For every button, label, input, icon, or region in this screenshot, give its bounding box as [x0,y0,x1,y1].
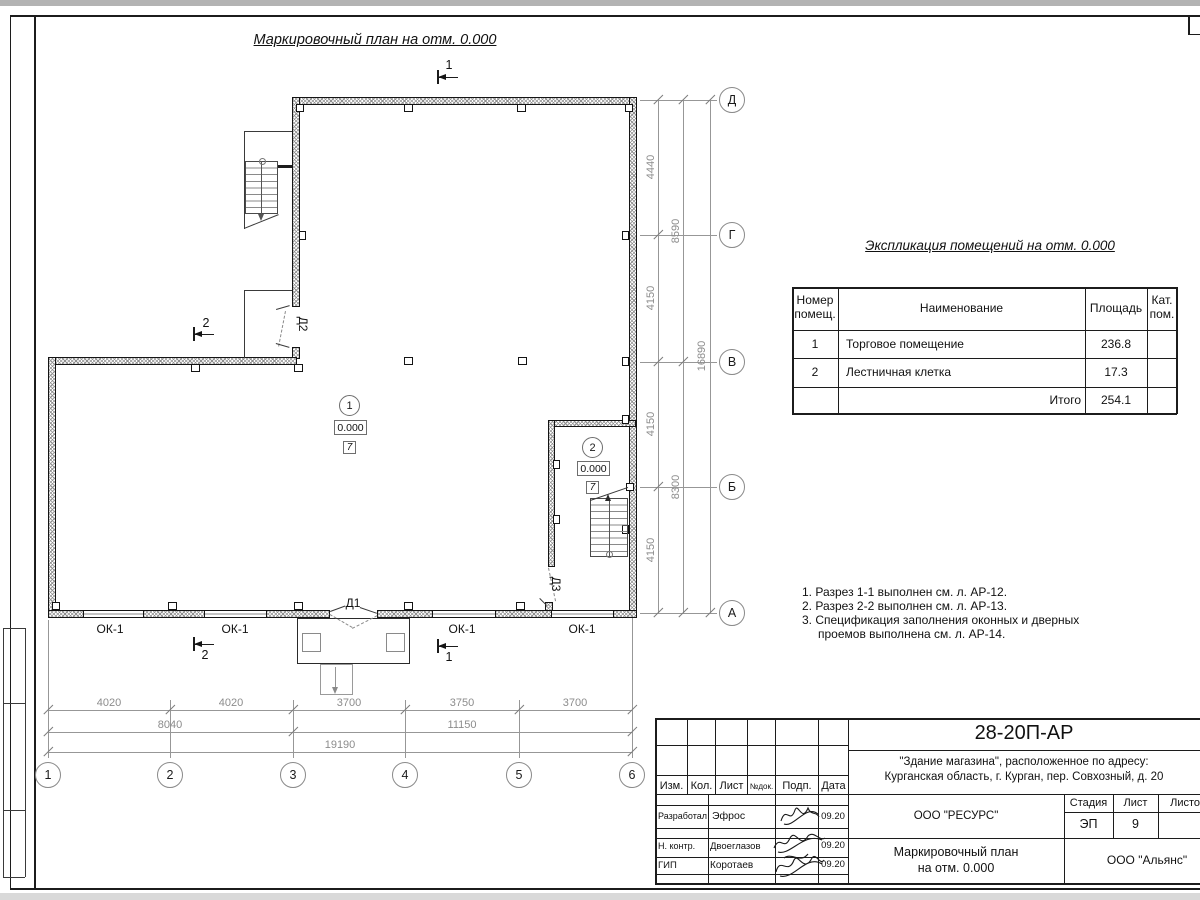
reg-strip-line [3,877,25,878]
drawing-sheet: Маркировочный план на отм. 0.000 [0,0,1200,900]
stair-direction-arrow-icon [605,494,611,501]
axis-circle-row: В [719,349,745,375]
table-col-header: Площадь [1085,301,1147,315]
dim-label: 4150 [645,278,657,318]
door-label-d2: Д2 [296,312,310,336]
wall-pier [622,357,629,366]
axis-circle-row: Б [719,474,745,500]
tb-sheets-label: Листов [1158,797,1200,809]
table-total-value: 254.1 [1085,393,1147,407]
wall-pier [52,602,60,610]
table-cell: Лестничная клетка [846,365,1066,379]
entry-arrow-icon [332,687,338,694]
axis-circle-row: Г [719,222,745,248]
wall-bottom-seg [613,610,637,618]
section-label: 1 [443,58,455,72]
dim-label: 3700 [550,697,600,709]
tb-header-data: Дата [819,780,848,792]
axis-circle-col: 3 [280,762,306,788]
wall-axis-v [48,357,297,365]
dimension-line [710,100,711,613]
dimension-line [48,752,632,753]
porch-column [386,633,405,652]
note-line: 2. Разрез 2-2 выполнен см. л. АР-13. [802,599,1162,613]
dim-label: 16890 [696,334,708,378]
window-ok1 [433,610,495,618]
section-arrow-icon [194,331,202,337]
wall-pier [622,231,629,240]
wall-pier [516,602,525,610]
room-number-badge: 1 [339,395,360,416]
door-leader [276,305,290,310]
vestibule-line [244,131,292,132]
tb-drawing-title-1: Маркировочный план [848,845,1064,859]
frame-bottom [10,888,1200,890]
note-line: 3. Спецификация заполнения оконных и две… [802,613,1172,627]
axis-circle-col: 4 [392,762,418,788]
stair-direction-start [606,551,613,558]
wall-bottom-seg [48,610,84,618]
scan-edge-bottom [0,893,1200,900]
dim-label: 4020 [84,697,134,709]
column [404,357,413,365]
axis-extension-line [48,620,49,758]
titleblock-line [655,775,848,776]
dim-label: 4440 [645,147,657,187]
wall-pier [553,515,560,524]
room-elevation: 0.000 [577,461,610,476]
stair-landing-edge [278,165,292,168]
wall-pier [294,364,303,372]
stair-direction-arrow-icon [258,214,264,221]
column [517,104,526,112]
wall-upper-left [292,97,300,307]
dim-label: 3750 [437,697,487,709]
table-line [792,387,1177,388]
reg-strip-line [3,810,25,811]
table-line [792,287,1177,289]
table-total-label: Итого [985,393,1081,407]
window-mark-label: ОК-1 [210,622,260,636]
frame-left-inner [34,15,36,889]
wall-bottom-seg [266,610,330,618]
table-cell: 1 [792,337,838,351]
section-label: 2 [200,316,212,330]
window-ok1 [84,610,143,618]
axis-circle-col: 6 [619,762,645,788]
titleblock-line [655,828,848,829]
tb-stage-label: Стадия [1064,797,1113,809]
axis-circle-row: Д [719,87,745,113]
signature-icon [770,850,828,880]
axis-circle-col: 1 [35,762,61,788]
column [296,104,304,112]
titleblock-line [655,794,1200,795]
window-mark-label: ОК-1 [437,622,487,636]
wall-pier [404,602,413,610]
dim-label: 8300 [670,467,682,507]
titleblock-line [655,718,1200,720]
vestibule-line [244,290,245,358]
wall-right [629,97,637,618]
porch-column [302,633,321,652]
note-line: 1. Разрез 1-1 выполнен см. л. АР-12. [802,585,1162,599]
dim-label: 3700 [324,697,374,709]
stair-direction-start [259,158,266,165]
wall-bottom-seg [495,610,552,618]
wall-pier [168,602,177,610]
dim-label: 19190 [315,739,365,751]
dimension-line [48,710,632,711]
titleblock-line [1064,812,1200,813]
room-category: 7 [343,441,356,454]
axis-circle-col: 2 [157,762,183,788]
wall-pier [191,364,200,372]
entry-arrow-line [335,667,336,689]
section-label: 1 [443,650,455,664]
table-cell: 2 [792,365,838,379]
signature-icon [778,801,822,827]
axis-extension-line [640,613,717,614]
dimension-line [658,100,659,613]
frame-top [10,15,1200,17]
room-category: 7 [586,481,599,494]
frame-corner-box-h [1188,34,1200,35]
tb-role: Н. контр. [658,841,695,851]
column [404,104,413,112]
table-col-header: Наименование [838,301,1085,315]
section-arrow-icon [194,641,202,647]
window-ok1 [552,610,613,618]
wall-top [292,97,637,105]
wall-pier [299,231,306,240]
door-leaf-d2 [278,311,286,347]
tb-sheet-value: 9 [1113,817,1158,831]
dim-label: 8590 [670,211,682,251]
stair-direction-line [261,161,262,216]
tb-drawing-title-2: на отм. 0.000 [848,861,1064,875]
dim-label: 11150 [437,719,487,731]
table-line [792,330,1177,331]
tb-header-kol: Кол. [688,780,715,792]
section-label: 2 [199,648,211,662]
wall-bottom-seg [143,610,205,618]
window-ok1 [205,610,266,618]
tb-header-podp: Подп. [776,780,818,792]
door-label-d1: Д1 [338,596,368,610]
tb-role: ГИП [658,860,677,871]
room-elevation: 0.000 [334,420,367,435]
tb-header-izm: Изм. [656,780,687,792]
dim-label: 4150 [645,530,657,570]
titleblock-line [655,718,657,884]
section-arrow-icon [438,74,446,80]
wall-pier [553,460,560,469]
axis-circle-row: А [719,600,745,626]
table-col-header: Номер помещ. [792,293,838,321]
reg-strip-line [3,703,25,704]
tb-date: 09.20 [819,811,847,822]
frame-left-outer [10,15,11,889]
vestibule-line [244,290,292,291]
window-mark-label: ОК-1 [85,622,135,636]
tb-role: Разработал [658,811,707,821]
table-cell: Торговое помещение [846,337,1066,351]
wall-left [48,357,56,618]
column [625,104,633,112]
tb-project-line2: Курганская область, г. Курган, пер. Совх… [848,771,1200,783]
tb-name: Коротаев [710,860,753,871]
tb-sheet-label: Лист [1113,797,1158,809]
wall-bottom-seg [377,610,433,618]
frame-corner-box-v [1188,15,1190,35]
tb-doc-number: 28-20П-АР [848,722,1200,745]
titleblock-line [708,794,709,883]
explication-title: Экспликация помещений на отм. 0.000 [830,238,1150,253]
dimension-line [683,100,684,613]
titleblock-line [655,838,1200,839]
dim-label: 8040 [145,719,195,731]
tb-org1: ООО "РЕСУРС" [848,810,1064,822]
titleblock-line [655,745,848,746]
scan-edge-top [0,0,1200,6]
table-cell: 17.3 [1085,365,1147,379]
titleblock-line [655,883,1200,885]
axis-extension-line [640,100,717,101]
room-number-badge: 2 [582,437,603,458]
note-line: проемов выполнена см. л. АР-14. [818,627,1178,641]
tb-org2: ООО "Альянс" [1064,853,1200,867]
tb-name: Двоеглазов [710,841,761,852]
tb-header-list: Лист [716,780,747,792]
table-line [792,413,1177,415]
stair-center-line [609,498,610,557]
tb-header-ndok: №док. [748,782,775,791]
table-line [792,358,1177,359]
column [518,357,527,365]
axis-extension-line [632,618,633,758]
tb-stage-value: ЭП [1064,817,1113,831]
table-cell: 236.8 [1085,337,1147,351]
reg-strip-line [25,628,26,877]
titleblock-line [848,750,1200,751]
axis-circle-col: 5 [506,762,532,788]
wall-stairroom-left [548,420,555,567]
reg-strip-line [3,628,25,629]
window-mark-label: ОК-1 [557,622,607,636]
tb-project-line1: "Здание магазина", расположенное по адре… [848,756,1200,768]
table-col-header: Кат. пом. [1147,293,1177,321]
dim-label: 4150 [645,404,657,444]
section-arrow-icon [438,643,446,649]
door-label-d3: Д3 [549,572,563,596]
dimension-line [48,732,632,733]
reg-strip-line [3,628,4,877]
dim-label: 4020 [206,697,256,709]
tb-name: Эфрос [712,810,745,822]
wall-pier [622,415,629,424]
wall-pier [294,602,303,610]
plan-title: Маркировочный план на отм. 0.000 [235,32,515,48]
